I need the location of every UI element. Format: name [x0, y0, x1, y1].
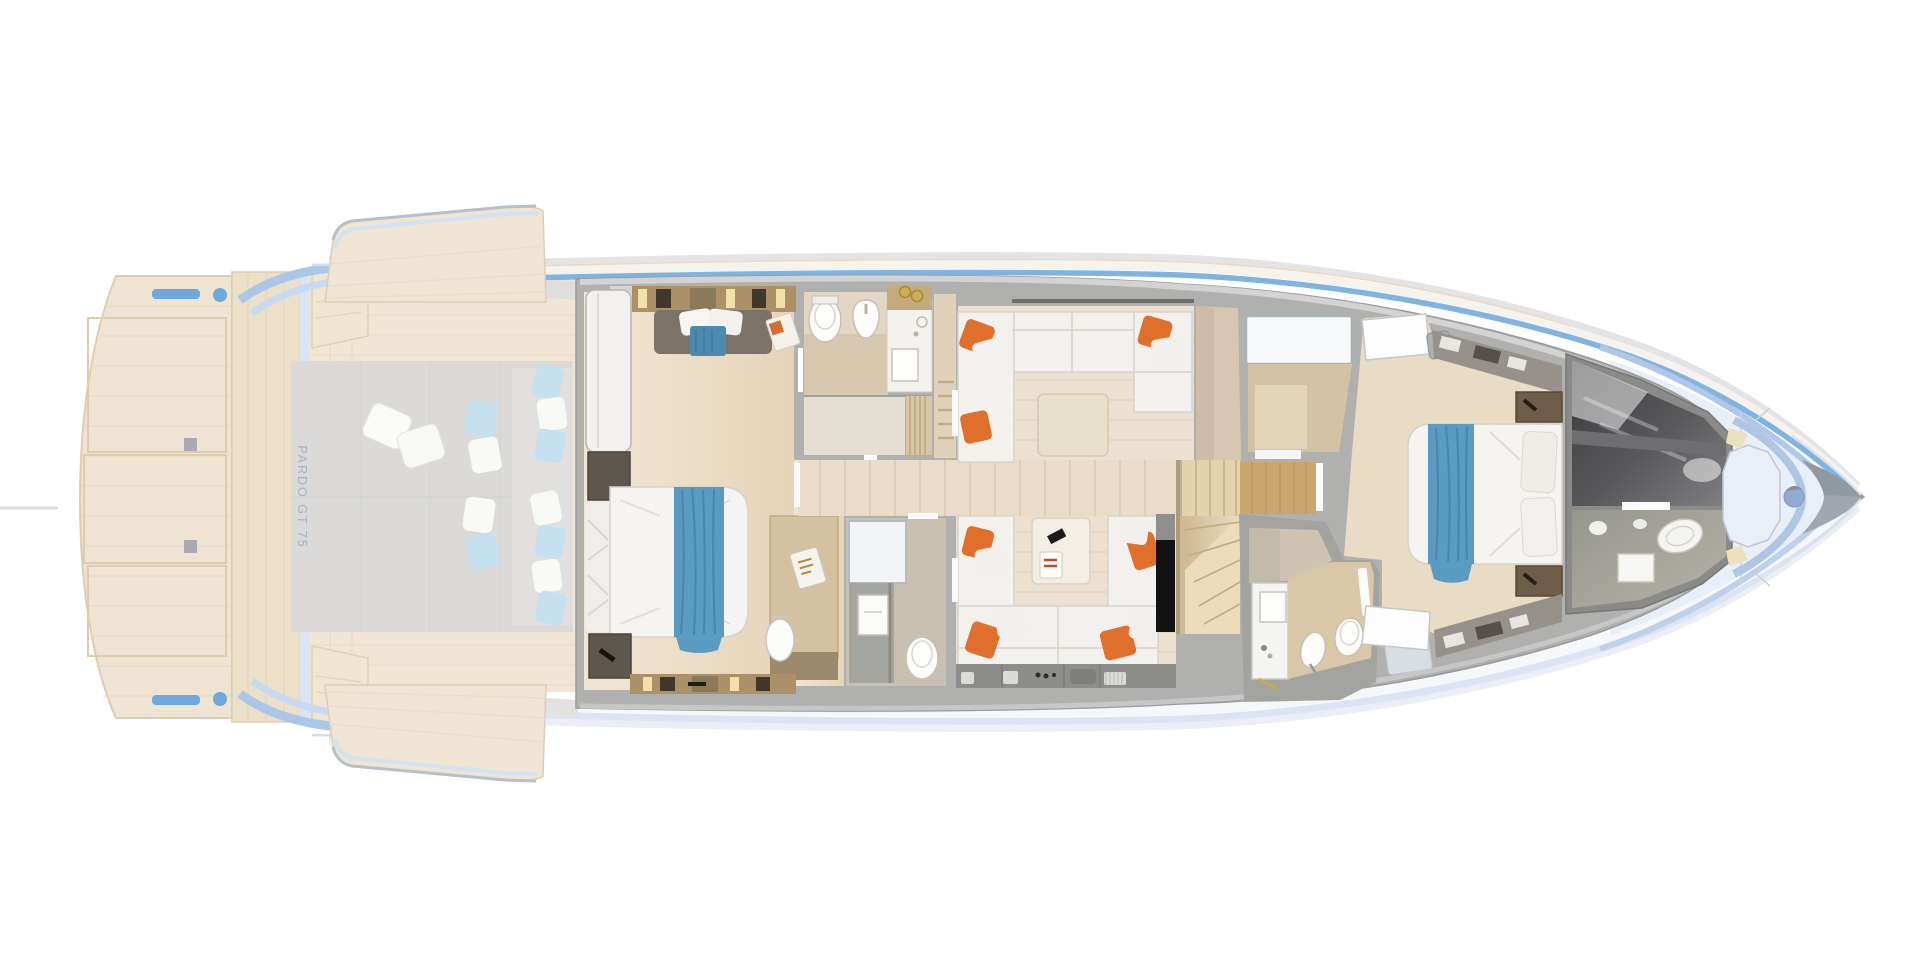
svg-text:PARDO GT 75: PARDO GT 75 — [295, 445, 309, 549]
